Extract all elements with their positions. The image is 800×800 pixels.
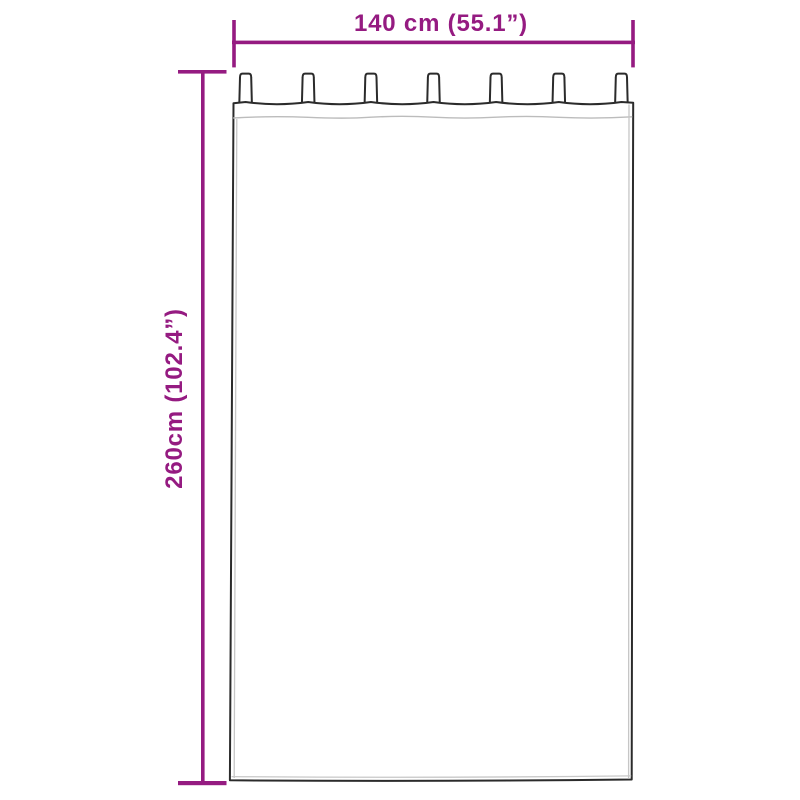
svg-text:260cm (102.4”): 260cm (102.4”) [161,308,188,489]
svg-text:140 cm (55.1”): 140 cm (55.1”) [354,10,528,37]
